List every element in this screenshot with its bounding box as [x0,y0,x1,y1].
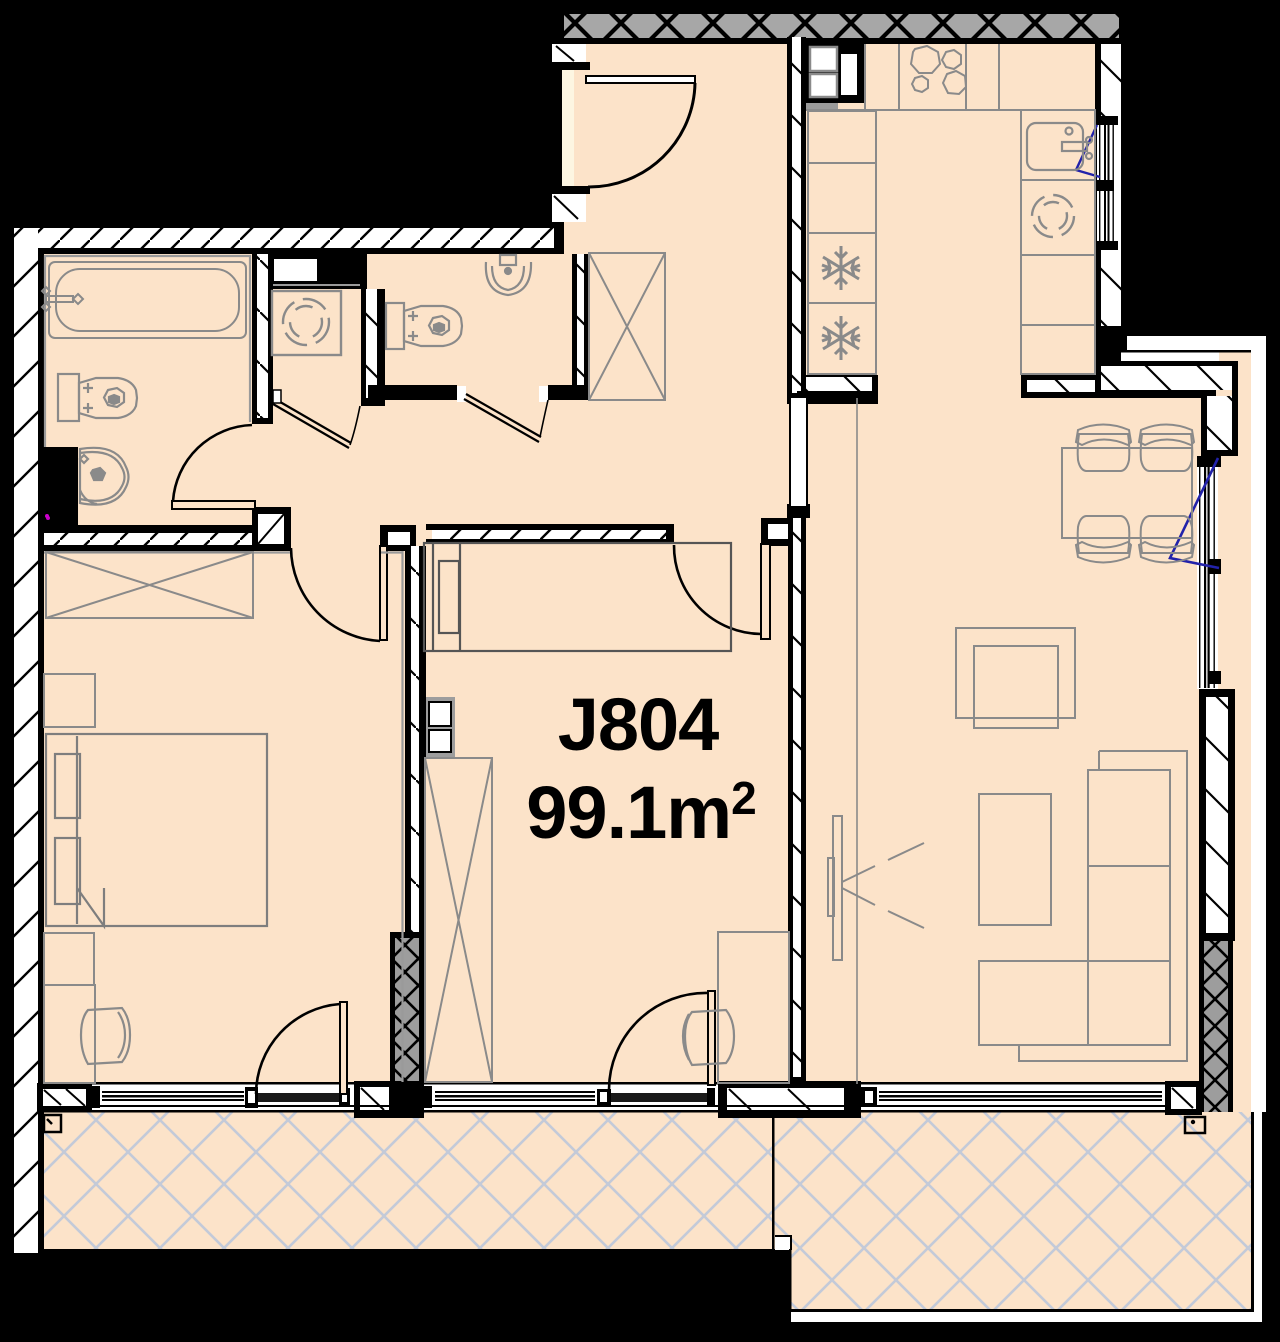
svg-text:99.1m2: 99.1m2 [526,771,755,854]
svg-text:J804: J804 [558,683,719,766]
